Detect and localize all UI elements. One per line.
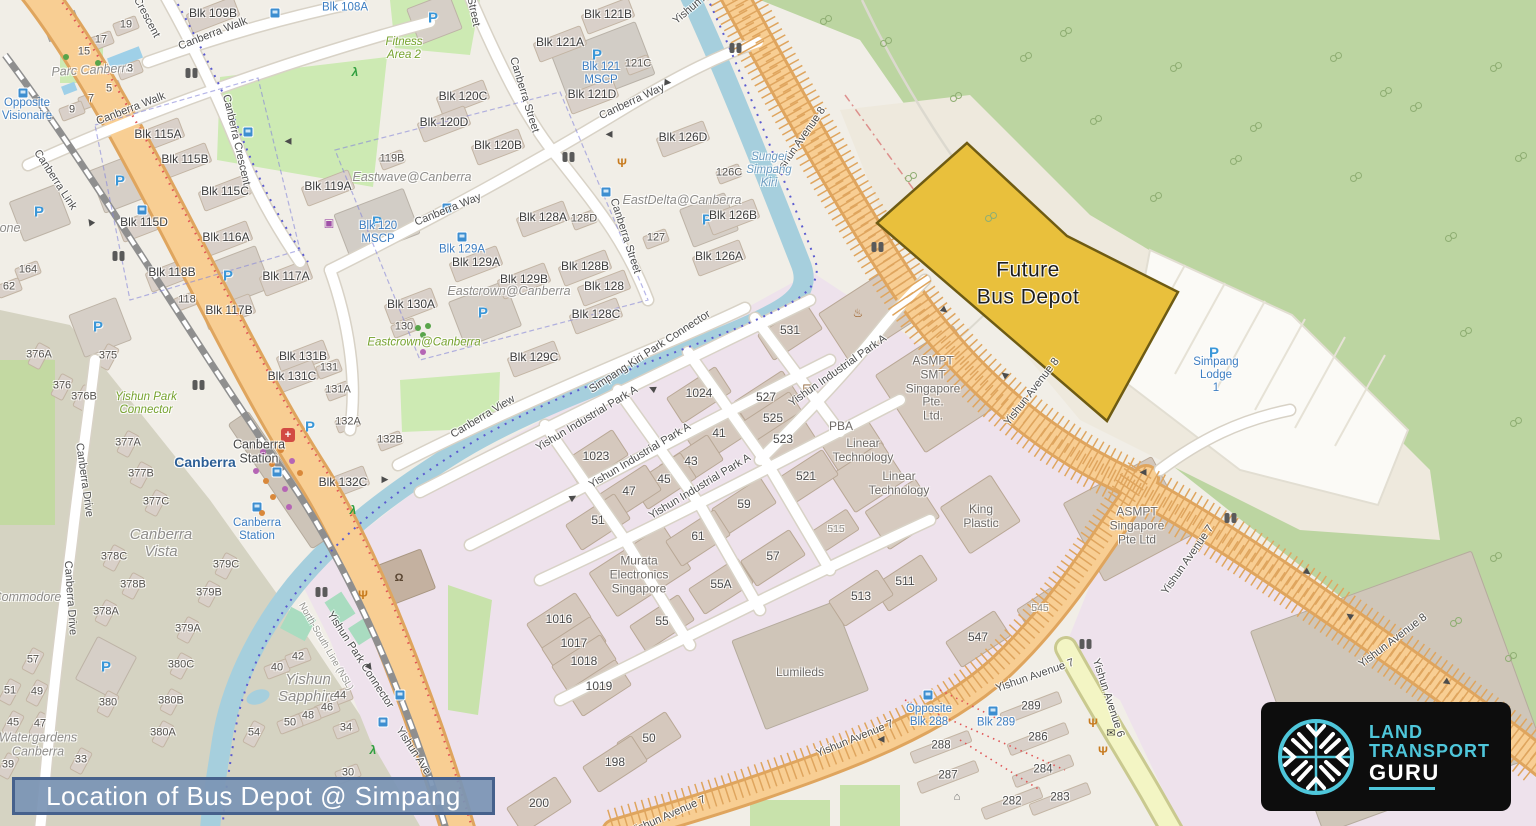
caption-banner: Location of Bus Depot @ Simpang — [12, 777, 495, 815]
map-canvas[interactable]: PPPPPPPPPPPP+ΨΨΨΨ✉λλλ▣♨⊟Ω⌂ Canberra Cres… — [0, 0, 1536, 826]
logo-text-guru: GURU — [1369, 761, 1490, 784]
brand-logo: LAND TRANSPORT GURU — [1261, 702, 1511, 811]
logo-underline — [1369, 787, 1435, 790]
caption-text: Location of Bus Depot @ Simpang — [46, 781, 461, 812]
logo-text-transport: TRANSPORT — [1369, 742, 1490, 761]
compass-logo-icon — [1273, 714, 1359, 800]
logo-text-land: LAND — [1369, 723, 1490, 742]
